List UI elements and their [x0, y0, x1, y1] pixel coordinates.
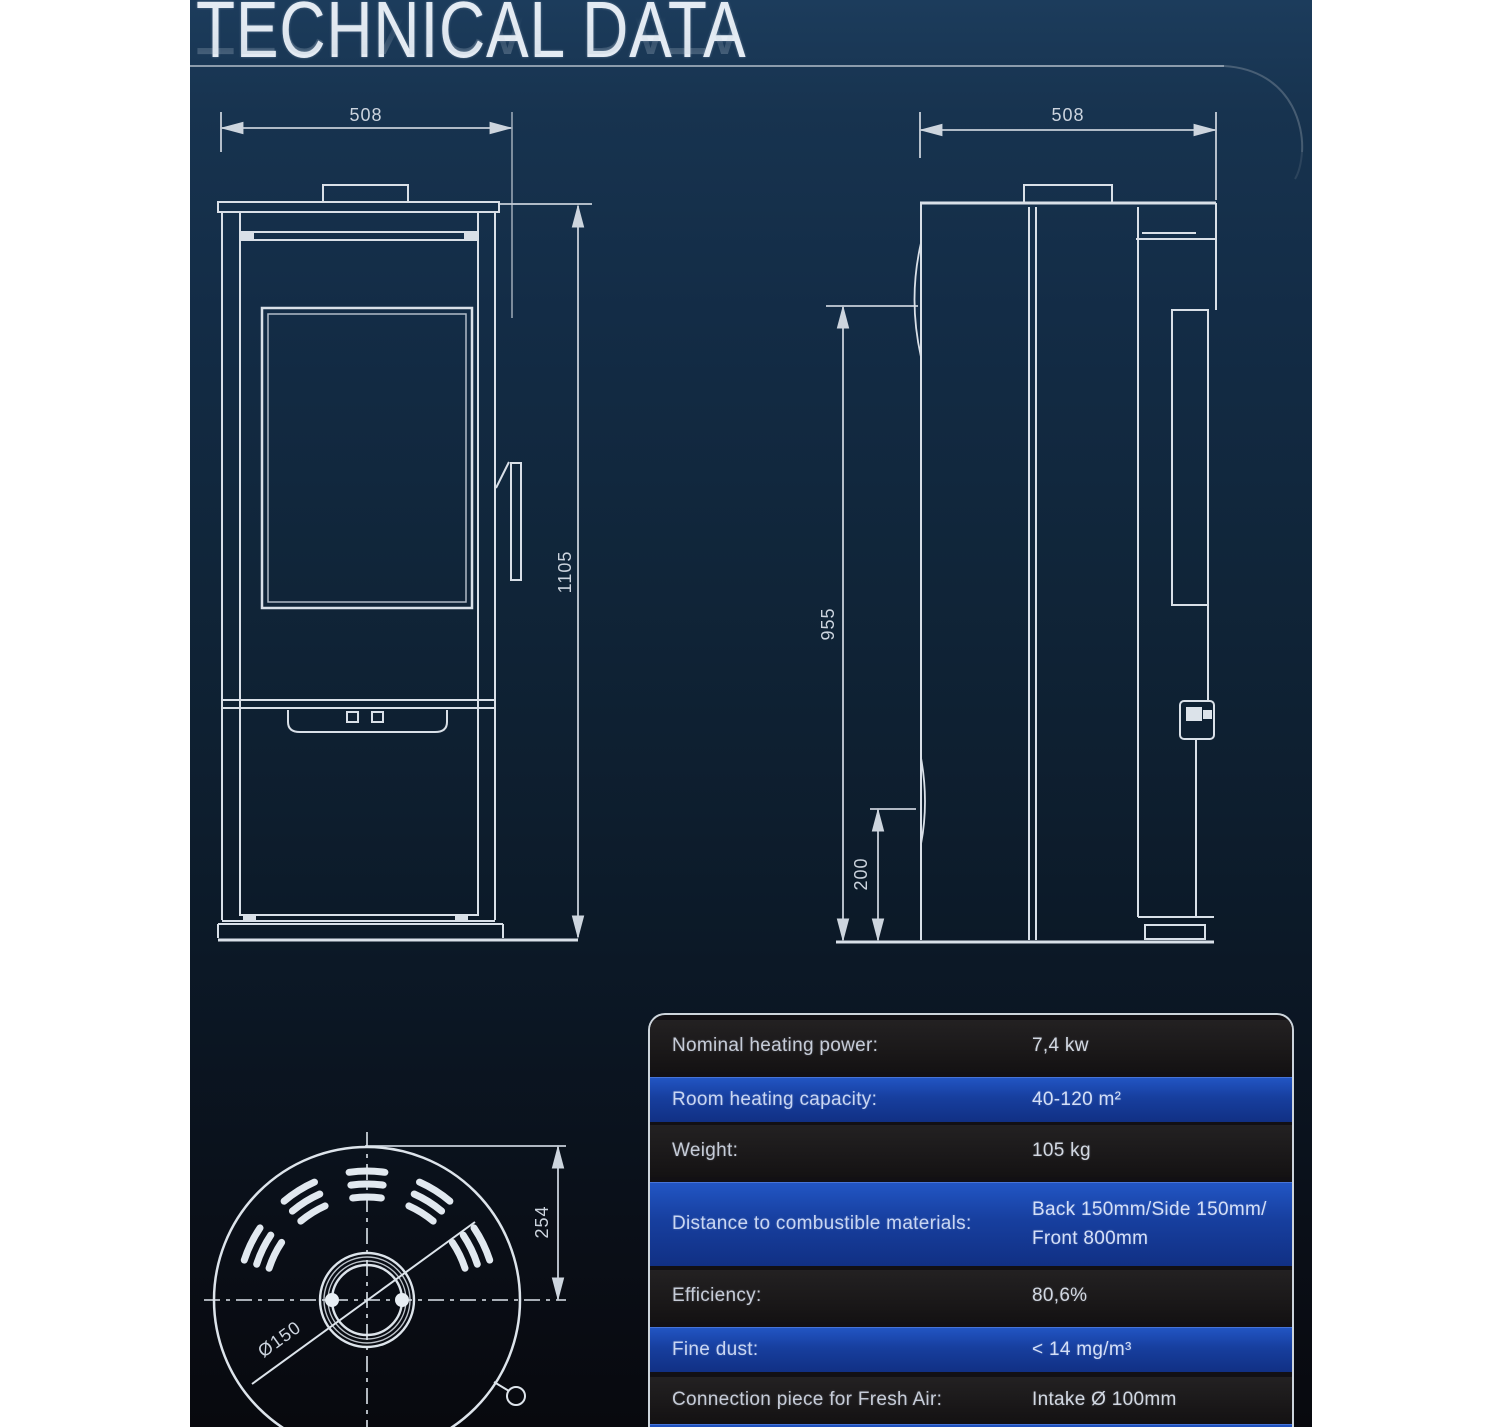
front-flue-collar	[323, 185, 408, 202]
front-width-label: 508	[349, 105, 382, 125]
page: TECHNICAL DATA TECHNICAL DATA 508	[0, 0, 1500, 1427]
spec-row-weight: Weight: 105 kg	[650, 1125, 1292, 1177]
spec-value: 40-120 m²	[1032, 1085, 1121, 1114]
top-flue-diameter-label: Ø150	[254, 1317, 305, 1361]
front-ash-lip	[288, 710, 447, 732]
front-top-plate	[218, 202, 499, 212]
spec-value-line1: Back 150mm/Side 150mm/	[1032, 1195, 1267, 1224]
spec-value-line2: Front 800mm	[1032, 1224, 1267, 1253]
spec-value: Intake Ø 100mm	[1032, 1385, 1177, 1414]
spec-label: Efficiency:	[672, 1285, 762, 1307]
spec-label: Weight:	[672, 1140, 738, 1162]
spec-value: 7,4 kw	[1032, 1031, 1089, 1060]
spec-label: Distance to combustible materials:	[672, 1213, 972, 1235]
spec-value: 105 kg	[1032, 1136, 1091, 1165]
side-clearance-dimension	[870, 809, 916, 940]
front-view-drawing: 508 1105	[218, 105, 592, 940]
spec-label: Nominal heating power:	[672, 1035, 878, 1057]
side-width-dimension	[920, 112, 1216, 200]
side-door-glass	[1172, 310, 1208, 605]
side-height-dimension	[826, 306, 918, 940]
spec-row-distance-to-combustibles: Distance to combustible materials: Back …	[650, 1182, 1292, 1266]
spec-row-room-heating-capacity: Room heating capacity: 40-120 m²	[650, 1077, 1292, 1122]
spec-row-efficiency: Efficiency: 80,6%	[650, 1270, 1292, 1322]
side-clearance-label: 200	[851, 857, 871, 890]
side-height-label: 955	[818, 607, 838, 640]
side-flue-collar	[1024, 185, 1112, 203]
top-flue-leader	[252, 1222, 475, 1384]
top-handle-knob	[494, 1382, 525, 1405]
front-door-handle	[496, 462, 521, 580]
side-view-drawing: 508 955 200	[818, 105, 1216, 942]
front-door-glass	[262, 308, 472, 608]
front-height-label: 1105	[555, 551, 575, 594]
spec-label: Connection piece for Fresh Air:	[672, 1389, 942, 1411]
spec-row-fresh-air-connection: Connection piece for Fresh Air: Intake Ø…	[650, 1377, 1292, 1422]
side-width-label: 508	[1051, 105, 1084, 125]
spec-row-fine-dust: Fine dust: < 14 mg/m³	[650, 1327, 1292, 1372]
spec-table: Nominal heating power: 7,4 kw Room heati…	[648, 1013, 1294, 1427]
front-width-dimension	[221, 112, 512, 318]
front-height-dimension	[500, 204, 592, 937]
side-door-latch	[1180, 701, 1214, 739]
spec-value: 80,6%	[1032, 1281, 1087, 1310]
top-view-drawing: 254 Ø150	[204, 1132, 566, 1427]
spec-value: Back 150mm/Side 150mm/ Front 800mm	[1032, 1195, 1267, 1254]
top-depth-label: 254	[532, 1205, 552, 1238]
spec-row-nominal-heating-power: Nominal heating power: 7,4 kw	[650, 1020, 1292, 1072]
spec-label: Fine dust:	[672, 1339, 758, 1361]
spec-label: Room heating capacity:	[672, 1089, 877, 1111]
spec-value: < 14 mg/m³	[1032, 1335, 1132, 1364]
